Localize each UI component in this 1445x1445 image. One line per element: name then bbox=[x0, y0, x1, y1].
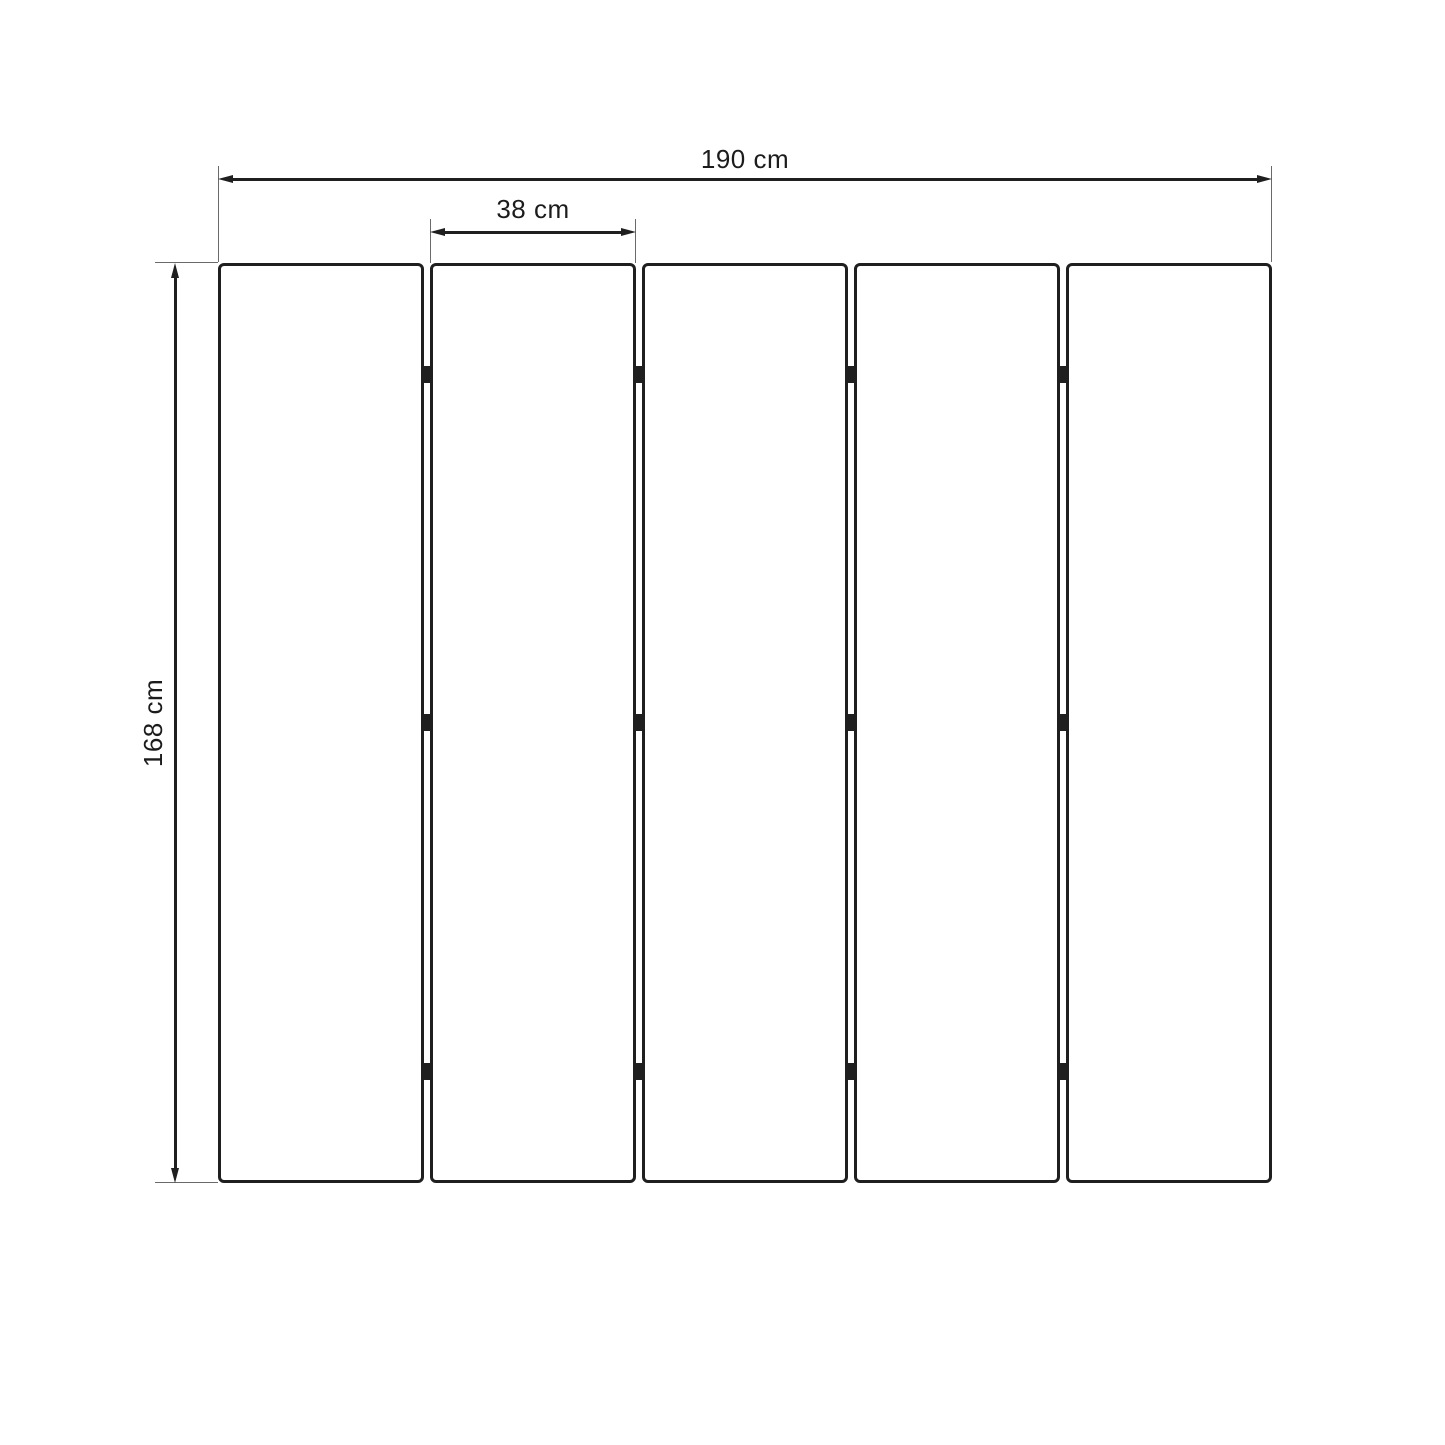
hinge-joint bbox=[1059, 714, 1068, 731]
arrowhead-down-icon bbox=[171, 1168, 179, 1183]
hinge-joint bbox=[423, 1063, 432, 1080]
hinge-joint bbox=[635, 1063, 644, 1080]
dimension-label-total-width: 190 cm bbox=[645, 144, 845, 175]
dimension-label-height: 168 cm bbox=[138, 623, 168, 823]
hinge-joint bbox=[847, 366, 856, 383]
arrowhead-right-icon bbox=[621, 228, 636, 236]
extension-line-bottom bbox=[155, 1182, 218, 1183]
hinge-joint bbox=[423, 366, 432, 383]
hinge-joint bbox=[635, 714, 644, 731]
hinge-joint bbox=[1059, 366, 1068, 383]
arrowhead-right-icon bbox=[1257, 175, 1272, 183]
extension-line-panel-right bbox=[635, 219, 636, 263]
panel-2 bbox=[430, 263, 636, 1183]
dimension-label-panel-width: 38 cm bbox=[433, 194, 633, 225]
hinge-joint bbox=[847, 1063, 856, 1080]
extension-line-panel-left bbox=[430, 219, 431, 263]
diagram-canvas: 190 cm 38 cm 168 cm bbox=[0, 0, 1445, 1445]
arrowhead-up-icon bbox=[171, 263, 179, 278]
hinge-joint bbox=[847, 714, 856, 731]
panel-4 bbox=[854, 263, 1060, 1183]
dimension-line-panel-width bbox=[438, 231, 628, 234]
panel-1 bbox=[218, 263, 424, 1183]
hinge-joint bbox=[1059, 1063, 1068, 1080]
hinge-joint bbox=[635, 366, 644, 383]
dimension-line-height bbox=[174, 271, 177, 1175]
dimension-line-total-width bbox=[226, 178, 1264, 181]
arrowhead-left-icon bbox=[430, 228, 445, 236]
panel-3 bbox=[642, 263, 848, 1183]
extension-line-top bbox=[155, 262, 218, 263]
panel-5 bbox=[1066, 263, 1272, 1183]
hinge-joint bbox=[423, 714, 432, 731]
arrowhead-left-icon bbox=[218, 175, 233, 183]
